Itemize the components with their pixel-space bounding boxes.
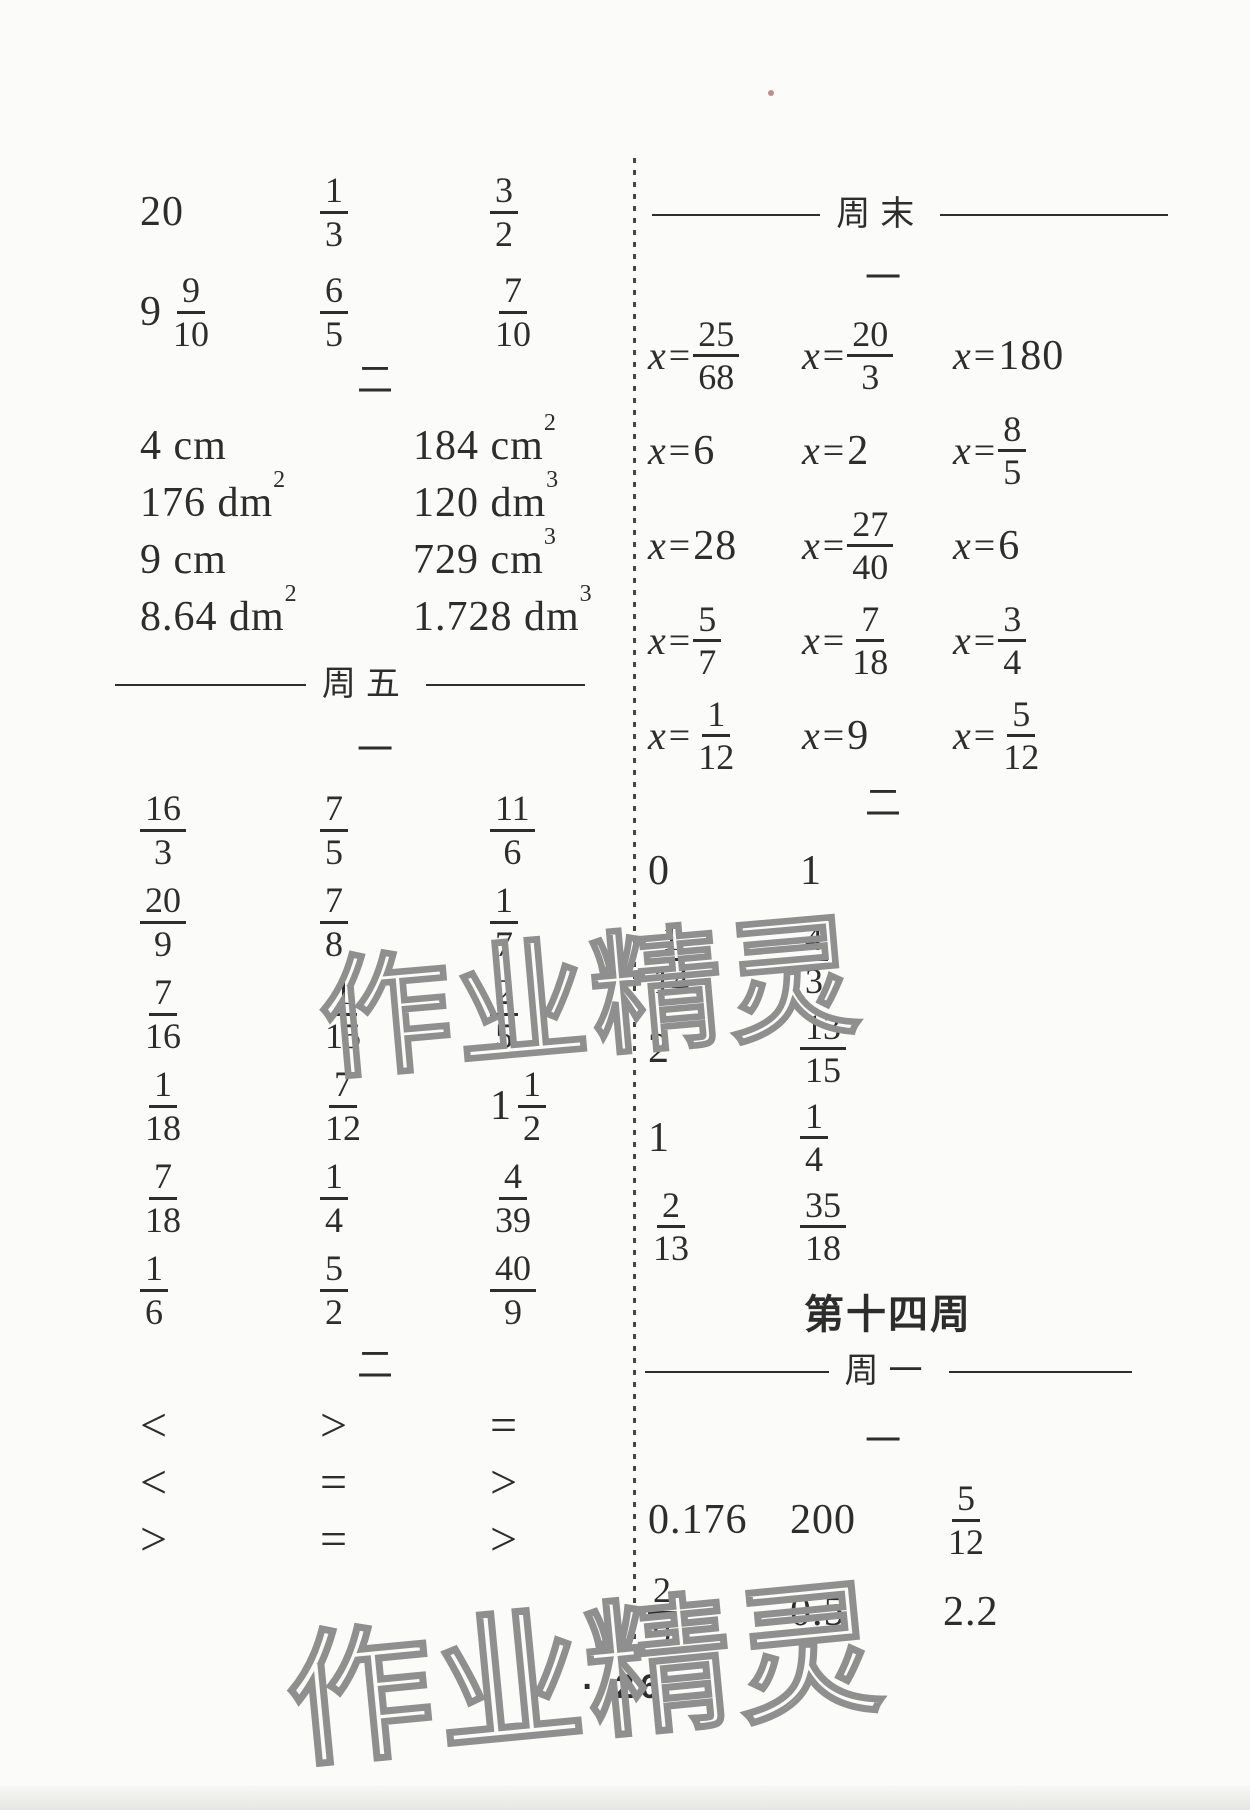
fraction: 75 [320,788,348,872]
denominator: 4 [998,642,1026,682]
answers-grid-equations: x=2568x=203x=180x=6x=2x=85x=28x=2740x=6x… [648,308,1158,783]
answer-cell: 0 [648,826,800,915]
fraction: 2740 [847,504,893,588]
equals-sign: = [669,717,690,755]
denominator: 12 [998,737,1044,777]
header-rule-left [645,1371,829,1373]
header-rule-right [940,214,1168,216]
denominator: 3 [320,214,348,254]
answer-cell: x=203 [802,308,953,403]
answer-cell: 115 [320,968,490,1060]
equals-sign: = [974,622,995,660]
answer-cell: 14 [320,1152,490,1244]
denominator: 2 [518,1108,546,1148]
answer-cell: > [140,1511,320,1568]
numerator: 7 [149,972,177,1015]
fraction: 115 [320,972,366,1056]
fraction: 112 [693,694,739,778]
section-label-one: 一 [648,260,1118,296]
denominator: 3 [800,961,828,1001]
denominator: 39 [490,1200,536,1240]
numerator: 1 [140,1248,168,1291]
answer-cell: 0.5 [790,1566,943,1658]
comparison-symbol-answer: < [140,1402,167,1450]
answer-cell: 112 [490,1060,610,1152]
answers-grid-monday: 0.176200512290.52.2 [648,1474,1108,1658]
equation-answer: x=34 [953,599,1026,683]
numerator: 16 [140,788,186,831]
denominator: 5 [320,314,348,354]
answers-grid-fractions: 1637511620978177161152511871211271814439… [140,784,610,1336]
section-label-two: 二 [648,785,1118,821]
fraction: 13 [320,170,348,254]
measurement-answer: 9 cm [140,539,227,581]
denominator: 7 [693,642,721,682]
numerator: 2 [648,1570,676,1613]
numerator: 25 [693,314,739,357]
denominator: 40 [847,547,893,587]
numerator: 1 [149,1064,177,1107]
fraction: 116 [490,788,535,872]
unit-exponent: 3 [580,581,592,607]
answer-cell: 712 [320,1060,490,1152]
equals-sign: = [823,717,844,755]
denominator: 9 [499,1292,527,1332]
denominator: 3 [149,832,177,872]
numerator: 9 [177,270,205,313]
numerator: 1 [702,694,730,737]
answer-cell: 14 [800,1093,1028,1182]
denominator: 14 [648,961,694,1001]
denominator: 5 [320,832,348,872]
header-friday: 周五 [115,668,585,702]
answer-cell: x=2 [802,403,953,498]
answer-cell: 2 [648,1004,800,1093]
denominator: 18 [847,642,893,682]
answer-cell: 176 dm2 [140,474,413,531]
answer-cell: x=57 [648,593,802,688]
section-label-one: 一 [140,732,610,768]
answer-cell: > [490,1511,610,1568]
fraction: 910 [168,270,214,354]
equation-answer: x=2740 [802,504,893,588]
equation-answer: x=112 [648,694,739,778]
equation-answer: x=2 [802,430,869,472]
answer-cell: x=180 [953,308,1158,403]
answer-cell: x=6 [953,498,1158,593]
fraction: 32 [490,170,518,254]
answer-cell: x=28 [648,498,802,593]
answer-cell: 716 [140,968,320,1060]
denominator: 9 [149,924,177,964]
workbook-answer-page: 201332991065710 二 4 cm184 cm2176 dm2120 … [0,0,1250,1810]
number-answer: 2 [648,1028,670,1070]
answer-cell: > [320,1397,490,1454]
fraction: 2568 [693,314,739,398]
denominator: 18 [140,1108,186,1148]
comparison-symbol-answer: < [140,1459,167,1507]
answer-cell: 20 [140,162,320,262]
equation-answer: x=203 [802,314,893,398]
equals-sign: = [823,527,844,565]
answer-cell: 1.728 dm3 [413,588,640,645]
answer-cell: 25 [490,968,610,1060]
header-rule-right [426,684,585,686]
answer-cell: 710 [490,262,610,362]
comparison-symbol-answer: = [490,1402,517,1450]
mixed-number-answer: 9910 [140,270,214,354]
answers-grid-comparisons: <>=<=>>=> [140,1397,610,1568]
answer-cell: = [320,1454,490,1511]
comparison-symbol-answer: > [490,1459,517,1507]
answer-cell: 78 [320,876,490,968]
answer-cell: 1 [800,826,1028,915]
denominator: 12 [693,737,739,777]
fraction: 43 [800,918,828,1002]
numerator: 35 [800,1185,846,1228]
measurement-answer: 8.64 dm2 [140,596,297,638]
fraction: 14 [800,1096,828,1180]
numerator: 20 [140,880,186,923]
fraction: 12 [518,1064,546,1148]
number-answer: 2.2 [943,1591,999,1633]
answers-grid-measurements: 4 cm184 cm2176 dm2120 dm39 cm729 cm38.64… [140,417,640,645]
scan-speck [768,90,774,96]
fraction: 716 [140,972,186,1056]
answer-cell: 8.64 dm2 [140,588,413,645]
section-label-two-b: 二 [140,1347,610,1383]
denominator: 8 [320,924,348,964]
numerator: 7 [856,599,884,642]
header-weekend: 周末 [652,198,1168,232]
numerator: 27 [847,504,893,547]
answer-cell: 13 [320,162,490,262]
numerator: 7 [499,270,527,313]
numerator: 7 [320,788,348,831]
fraction: 213 [648,1185,694,1269]
numerator: 3 [490,170,518,213]
equals-sign: = [823,622,844,660]
answer-cell: 409 [490,1244,610,1336]
equals-sign: = [669,527,690,565]
unit-exponent: 3 [546,467,558,493]
equation-answer: x=2568 [648,314,739,398]
answer-cell: 439 [490,1152,610,1244]
denominator: 15 [320,1016,366,1056]
numerator: 7 [320,880,348,923]
answer-cell: 184 cm2 [413,417,640,474]
equation-answer: x=180 [953,335,1064,377]
denominator: 7 [490,924,518,964]
equals-sign: = [669,337,690,375]
unit-exponent: 2 [285,581,297,607]
denominator: 2 [490,214,518,254]
numerator: 1 [320,170,348,213]
equation-answer: x=85 [953,409,1026,493]
equals-sign: = [974,717,995,755]
answer-cell: 29 [648,1566,790,1658]
answer-cell: 52 [320,1244,490,1336]
comparison-symbol-answer: = [320,1459,347,1507]
page-number: · 26 · [545,1668,735,1707]
numerator: 2 [657,1185,685,1228]
fraction: 409 [490,1248,536,1332]
answer-cell: x=85 [953,403,1158,498]
answer-cell: 3518 [800,1182,1028,1271]
fraction: 14 [320,1156,348,1240]
number-answer: 0.176 [648,1499,748,1541]
equals-sign: = [974,432,995,470]
scan-bottom-edge [0,1786,1250,1810]
answers-grid-top: 201332991065710 [140,162,610,362]
fraction: 114 [648,918,694,1002]
answer-cell: 209 [140,876,320,968]
comparison-symbol-answer: > [490,1516,517,1564]
numerator: 1 [490,880,518,923]
whole-part: 1 [490,1085,511,1127]
fraction: 78 [320,880,348,964]
measurement-answer: 4 cm [140,425,227,467]
equation-answer: x=57 [648,599,721,683]
equals-sign: = [669,622,690,660]
fraction: 203 [847,314,893,398]
week-14-title: 第十四周 [648,1282,1128,1340]
denominator: 12 [320,1108,366,1148]
fraction: 718 [140,1156,186,1240]
equation-answer: x=6 [648,430,715,472]
equals-sign: = [974,337,995,375]
answer-cell: 17 [490,876,610,968]
denominator: 16 [140,1016,186,1056]
answer-cell: x=6 [648,403,802,498]
column-divider-dotted-line [633,158,636,1650]
answer-cell: = [320,1511,490,1568]
denominator: 9 [648,1614,676,1654]
numerator: 2 [490,972,518,1015]
fraction: 85 [998,409,1026,493]
equals-sign: = [823,337,844,375]
section-label-one-monday: 一 [648,1423,1118,1459]
answer-cell: 2.2 [943,1566,1108,1658]
measurement-answer: 120 dm3 [413,482,558,524]
numerator: 1 [320,1156,348,1199]
answer-cell: x=2740 [802,498,953,593]
numerator: 5 [952,1478,980,1521]
answer-cell: 4 cm [140,417,413,474]
comparison-symbol-answer: = [320,1516,347,1564]
number-answer: 0.5 [790,1591,846,1633]
answer-cell: 0.176 [648,1474,790,1566]
numerator: 3 [998,599,1026,642]
fraction: 439 [490,1156,536,1240]
answer-cell: 120 dm3 [413,474,640,531]
answer-cell: < [140,1454,320,1511]
denominator: 15 [800,1050,846,1090]
denominator: 18 [140,1200,186,1240]
whole-part: 9 [140,291,161,333]
number-answer: 20 [140,191,184,233]
answer-cell: < [140,1397,320,1454]
denominator: 10 [168,314,214,354]
answer-cell: 65 [320,262,490,362]
fraction: 512 [943,1478,989,1562]
denominator: 6 [498,832,526,872]
answer-cell: 718 [140,1152,320,1244]
answer-cell: x=9 [802,688,953,783]
fraction: 52 [320,1248,348,1332]
answer-cell: 1 [648,1093,800,1182]
equation-answer: x=718 [802,599,893,683]
numerator: 5 [320,1248,348,1291]
denominator: 3 [856,357,884,397]
answer-cell: > [490,1454,610,1511]
denominator: 6 [140,1292,168,1332]
measurement-answer: 176 dm2 [140,482,285,524]
equation-answer: x=512 [953,694,1044,778]
answer-cell: 9 cm [140,531,413,588]
comparison-symbol-answer: > [140,1516,167,1564]
denominator: 5 [490,1016,518,1056]
answer-cell: 114 [648,915,800,1004]
answer-cell: 163 [140,784,320,876]
fraction: 118 [140,1064,186,1148]
fraction: 57 [693,599,721,683]
mixed-number-answer: 112 [490,1064,546,1148]
answer-cell: x=512 [953,688,1158,783]
fraction: 163 [140,788,186,872]
answers-grid-values: 0111443213151142133518 [648,826,1028,1271]
fraction: 712 [320,1064,366,1148]
numerator: 5 [693,599,721,642]
header-weekend-label: 周末 [836,198,924,232]
header-rule-right [949,1371,1133,1373]
numerator: 6 [320,270,348,313]
fraction: 16 [140,1248,168,1332]
answer-cell: 32 [490,162,610,262]
fraction: 25 [490,972,518,1056]
fraction: 1315 [800,1007,846,1091]
answer-cell: 43 [800,915,1028,1004]
numerator: 5 [1007,694,1035,737]
equals-sign: = [823,432,844,470]
comparison-symbol-answer: > [320,1402,347,1450]
number-answer: 1 [800,850,822,892]
fraction: 209 [140,880,186,964]
answer-cell: 118 [140,1060,320,1152]
denominator: 10 [490,314,536,354]
answer-cell: 200 [790,1474,943,1566]
answer-cell: 75 [320,784,490,876]
answer-cell: x=112 [648,688,802,783]
denominator: 13 [648,1228,694,1268]
answer-cell: 213 [648,1182,800,1271]
fraction: 34 [998,599,1026,683]
numerator: 4 [499,1156,527,1199]
numerator: 40 [490,1248,536,1291]
fraction: 29 [648,1570,676,1654]
measurement-answer: 184 cm2 [413,425,556,467]
measurement-answer: 1.728 dm3 [413,596,592,638]
numerator: 11 [490,788,535,831]
denominator: 2 [320,1292,348,1332]
answer-cell: 116 [490,784,610,876]
measurement-answer: 729 cm3 [413,539,556,581]
number-answer: 200 [790,1499,856,1541]
numerator: 7 [329,1064,357,1107]
number-answer: 0 [648,850,670,892]
answer-cell: x=34 [953,593,1158,688]
section-label-two: 二 [140,362,610,398]
numerator: 4 [800,918,828,961]
numerator: 1 [518,1064,546,1107]
denominator: 4 [800,1139,828,1179]
fraction: 65 [320,270,348,354]
header-friday-label: 周五 [322,668,410,702]
answer-cell: 16 [140,1244,320,1336]
header-monday-label: 周一 [845,1355,933,1389]
numerator: 1 [657,918,685,961]
unit-exponent: 2 [273,467,285,493]
header-rule-left [115,684,306,686]
numerator: 20 [847,314,893,357]
answer-cell: 1315 [800,1004,1028,1093]
denominator: 5 [998,452,1026,492]
unit-exponent: 2 [544,410,556,436]
fraction: 17 [490,880,518,964]
answer-cell: = [490,1397,610,1454]
denominator: 68 [693,357,739,397]
numerator: 7 [149,1156,177,1199]
header-rule-left [652,214,820,216]
fraction: 512 [998,694,1044,778]
fraction: 718 [847,599,893,683]
equation-answer: x=6 [953,525,1020,567]
number-answer: 1 [648,1117,670,1159]
equation-answer: x=28 [648,525,737,567]
answer-cell: 729 cm3 [413,531,640,588]
answer-cell: x=718 [802,593,953,688]
fraction: 710 [490,270,536,354]
denominator: 4 [320,1200,348,1240]
numerator: 8 [998,409,1026,452]
denominator: 12 [943,1522,989,1562]
equation-answer: x=9 [802,715,869,757]
answer-cell: x=2568 [648,308,802,403]
header-monday: 周一 [645,1355,1132,1389]
equals-sign: = [974,527,995,565]
equals-sign: = [669,432,690,470]
numerator: 1 [329,972,357,1015]
numerator: 13 [800,1007,846,1050]
numerator: 1 [800,1096,828,1139]
answer-cell: 9910 [140,262,320,362]
answer-cell: 512 [943,1474,1108,1566]
unit-exponent: 3 [544,524,556,550]
denominator: 18 [800,1228,846,1268]
fraction: 3518 [800,1185,846,1269]
